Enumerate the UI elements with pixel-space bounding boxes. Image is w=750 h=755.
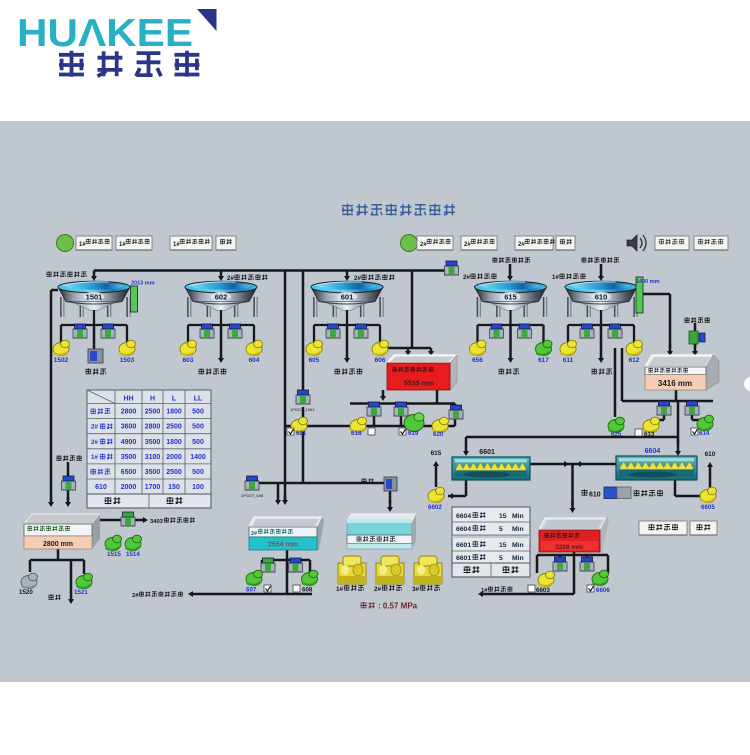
svg-text:1514: 1514 xyxy=(126,551,140,558)
svg-text:6604: 6604 xyxy=(645,448,661,455)
svg-text:3600: 3600 xyxy=(121,424,137,431)
svg-text:612: 612 xyxy=(629,357,640,364)
svg-text:610: 610 xyxy=(705,451,716,458)
svg-text:5: 5 xyxy=(499,526,503,533)
svg-text:1521: 1521 xyxy=(74,589,88,596)
svg-text:621: 621 xyxy=(296,430,307,437)
svg-text:606: 606 xyxy=(375,357,386,364)
svg-text:5535 mm: 5535 mm xyxy=(404,381,434,388)
svg-text:1#: 1# xyxy=(336,586,344,593)
svg-text:1#: 1# xyxy=(552,274,559,281)
svg-text:3500: 3500 xyxy=(145,439,161,446)
svg-text:15: 15 xyxy=(499,513,507,520)
svg-text:3#: 3# xyxy=(412,586,420,593)
svg-text:2000: 2000 xyxy=(166,454,182,461)
svg-text:2#: 2# xyxy=(132,593,139,599)
svg-text:610: 610 xyxy=(589,492,601,499)
svg-text:6500: 6500 xyxy=(121,469,137,476)
svg-text:5: 5 xyxy=(499,555,503,562)
svg-text:2#: 2# xyxy=(91,424,98,431)
svg-text:2800 mm: 2800 mm xyxy=(43,541,73,548)
svg-text:2500: 2500 xyxy=(145,409,161,416)
svg-text:6601: 6601 xyxy=(479,449,495,456)
svg-text:615: 615 xyxy=(504,293,517,302)
svg-text:HH: HH xyxy=(123,396,133,403)
svg-text:3500: 3500 xyxy=(121,454,137,461)
svg-text:2#: 2# xyxy=(91,439,98,446)
svg-text:608: 608 xyxy=(302,587,313,594)
svg-text:3403: 3403 xyxy=(150,519,164,525)
svg-text:617: 617 xyxy=(538,357,549,364)
svg-text:601: 601 xyxy=(341,293,354,302)
svg-text:1520: 1520 xyxy=(19,589,33,596)
svg-text:656: 656 xyxy=(472,357,483,364)
svg-text:: 0.57 MPa: : 0.57 MPa xyxy=(378,602,418,611)
svg-text:2554 mm: 2554 mm xyxy=(268,542,298,549)
svg-text:619: 619 xyxy=(408,430,419,437)
svg-text:620: 620 xyxy=(433,431,444,438)
svg-text:Min: Min xyxy=(512,542,524,549)
svg-text:6605: 6605 xyxy=(701,504,715,511)
svg-text:2800: 2800 xyxy=(121,409,137,416)
svg-text:1502: 1502 xyxy=(54,357,69,364)
svg-text:500: 500 xyxy=(192,409,204,416)
svg-text:6604: 6604 xyxy=(456,513,471,520)
svg-text:3228 mm: 3228 mm xyxy=(555,544,583,551)
svg-text:3500: 3500 xyxy=(145,469,161,476)
svg-text:1PGDT_608: 1PGDT_608 xyxy=(241,493,264,498)
svg-text:Min: Min xyxy=(512,555,524,562)
svg-text:1700: 1700 xyxy=(145,484,161,491)
svg-text:HUΛKEE: HUΛKEE xyxy=(17,12,193,55)
svg-text:613: 613 xyxy=(644,431,655,438)
svg-text:2#: 2# xyxy=(251,531,257,537)
svg-text:1501: 1501 xyxy=(86,293,103,302)
svg-text:6604: 6604 xyxy=(456,526,471,533)
svg-text:1#: 1# xyxy=(119,242,126,248)
svg-text:Min: Min xyxy=(512,513,524,520)
svg-text:1800: 1800 xyxy=(166,409,182,416)
svg-text:3416 mm: 3416 mm xyxy=(658,379,692,388)
svg-text:6606: 6606 xyxy=(596,587,610,594)
svg-text:Min: Min xyxy=(512,526,524,533)
svg-text:611: 611 xyxy=(563,357,574,364)
svg-text:LL: LL xyxy=(194,396,203,403)
svg-text:1#: 1# xyxy=(481,588,488,594)
svg-text:2500: 2500 xyxy=(166,469,182,476)
svg-text:625: 625 xyxy=(611,431,622,438)
svg-text:H: H xyxy=(150,396,155,403)
svg-text:6603: 6603 xyxy=(536,587,550,594)
svg-text:607: 607 xyxy=(246,587,257,594)
svg-text:2000: 2000 xyxy=(121,484,137,491)
svg-text:614: 614 xyxy=(699,430,710,437)
svg-text:2#: 2# xyxy=(463,274,470,281)
svg-text:610: 610 xyxy=(595,293,608,302)
svg-text:2#: 2# xyxy=(518,242,525,248)
svg-text:618: 618 xyxy=(351,430,362,437)
svg-text:1400: 1400 xyxy=(190,454,206,461)
svg-text:610: 610 xyxy=(95,484,107,491)
svg-text:150: 150 xyxy=(168,484,180,491)
svg-text:1#: 1# xyxy=(173,242,180,248)
svg-text:1#: 1# xyxy=(91,454,98,461)
svg-text:4900: 4900 xyxy=(121,439,137,446)
svg-text:2500: 2500 xyxy=(166,424,182,431)
svg-text:1503: 1503 xyxy=(120,357,135,364)
svg-text:6602: 6602 xyxy=(428,504,442,511)
svg-text:15: 15 xyxy=(499,542,507,549)
svg-text:1PGDT_1501: 1PGDT_1501 xyxy=(290,407,315,412)
svg-text:1800: 1800 xyxy=(166,439,182,446)
svg-text:100: 100 xyxy=(192,484,204,491)
svg-text:2800: 2800 xyxy=(145,424,161,431)
svg-text:500: 500 xyxy=(192,439,204,446)
svg-text:615: 615 xyxy=(431,450,442,457)
svg-text:602: 602 xyxy=(215,293,228,302)
svg-text:2013 mm: 2013 mm xyxy=(131,281,155,287)
svg-text:2#: 2# xyxy=(464,242,471,248)
svg-text:2#: 2# xyxy=(374,586,382,593)
svg-text:2#: 2# xyxy=(420,242,427,248)
svg-text:6601: 6601 xyxy=(456,555,471,562)
svg-text:3100: 3100 xyxy=(145,454,161,461)
svg-text:604: 604 xyxy=(249,357,260,364)
svg-text:1400 mm: 1400 mm xyxy=(636,279,660,285)
svg-text:1#: 1# xyxy=(79,242,86,248)
svg-text:6601: 6601 xyxy=(456,542,471,549)
svg-text:1515: 1515 xyxy=(107,551,121,558)
svg-text:500: 500 xyxy=(192,469,204,476)
svg-text:L: L xyxy=(172,396,177,403)
svg-text:605: 605 xyxy=(309,357,320,364)
svg-text:500: 500 xyxy=(192,424,204,431)
svg-text:603: 603 xyxy=(183,357,194,364)
